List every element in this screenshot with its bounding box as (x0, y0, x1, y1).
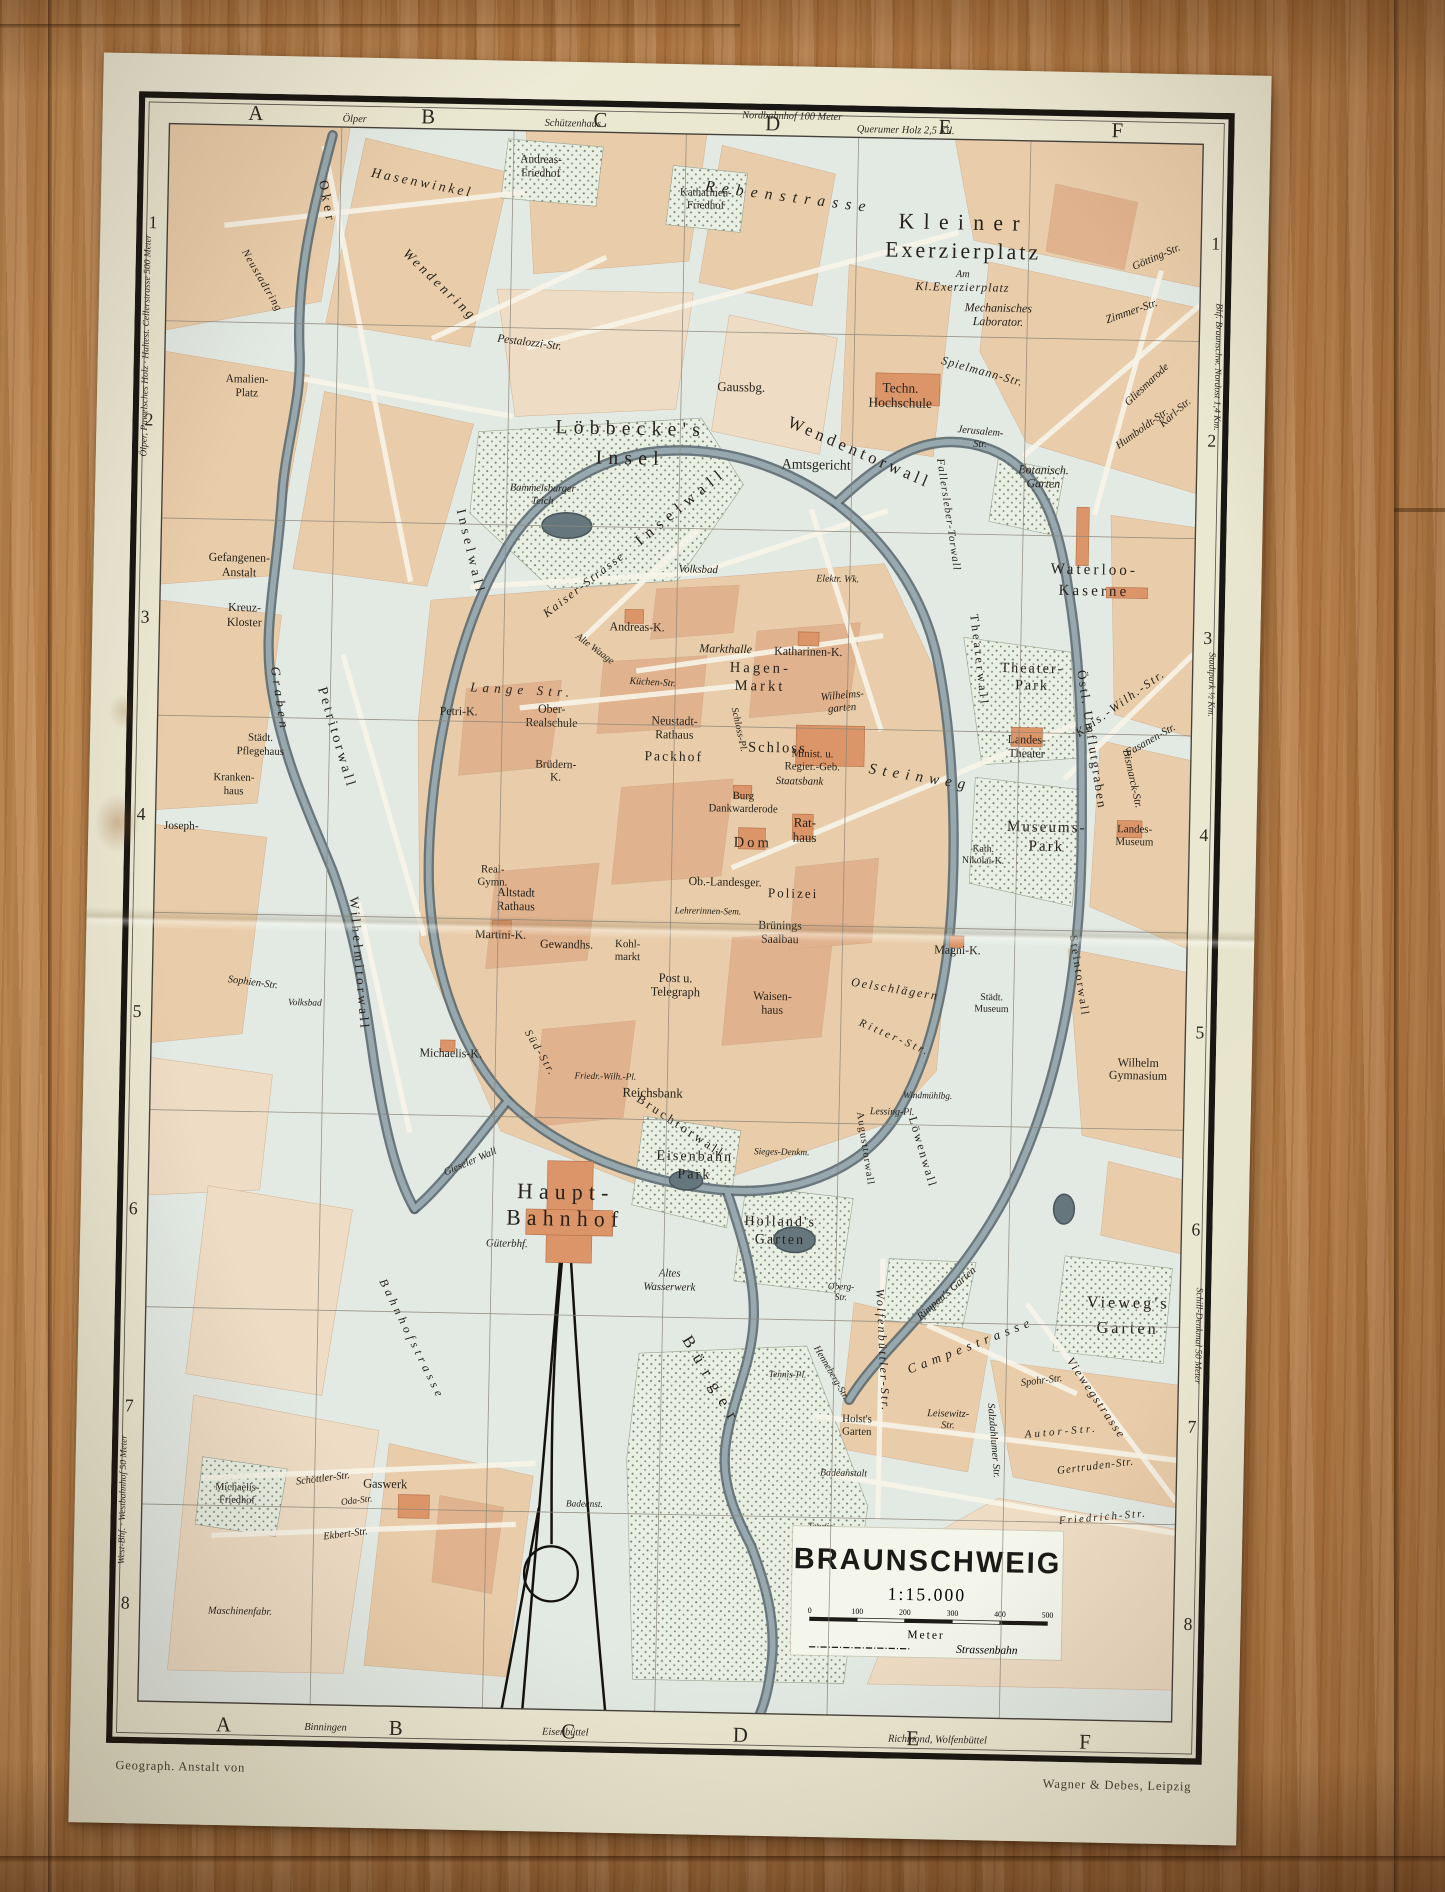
map-label: Katharinen-K. (774, 644, 843, 660)
grid-number-right: 4 (1199, 825, 1208, 845)
scale-unit: Meter (907, 1629, 945, 1642)
grid-number-right: 3 (1203, 628, 1212, 648)
map-label: Vieweg's (1087, 1293, 1170, 1313)
map-label: Volksbad (288, 998, 322, 1009)
map-label: Löbbecke's (555, 416, 706, 441)
scale-tick: 200 (899, 1608, 911, 1617)
map-label: Martini-K. (475, 927, 526, 942)
grid-number-right: 6 (1191, 1219, 1200, 1239)
scale-tick: 500 (1042, 1610, 1054, 1619)
map-label: Lehrerinnen-Sem. (674, 906, 742, 917)
map-label: Burg (733, 790, 755, 803)
map-label: Kath. (972, 843, 994, 855)
map-label: Kl.Exerzierplatz (914, 279, 1009, 295)
city-block (789, 856, 879, 951)
scale-tick: 0 (808, 1606, 812, 1615)
map-label: Garten (755, 1231, 806, 1248)
map-label: Am (955, 269, 970, 280)
grid-number-left: 3 (141, 606, 150, 626)
scale-bar-segment (1000, 1621, 1048, 1625)
map-label: Gaswerk (363, 1476, 408, 1491)
map-label: Altes (658, 1267, 681, 1280)
photo-scene: HasenwinkelAndreas-FriedhofRebenstrasseK… (0, 0, 1445, 1892)
map-label: Telegraph (651, 984, 701, 999)
map-label: Friedhof (521, 167, 561, 180)
map-label: Theater- (1001, 660, 1065, 677)
map-label: Waterloo- (1051, 560, 1139, 579)
edge-note-top: Schützenhaus (545, 118, 601, 130)
grid-letter-top: A (248, 101, 263, 126)
map-label: Insel (595, 446, 665, 470)
map-label: Ober- (538, 701, 566, 716)
tram-legend: Strassenbahn (956, 1644, 1018, 1657)
map-label: Magni-K. (934, 942, 981, 957)
map-label: Kaserne (1058, 582, 1129, 601)
map-label: Waisen- (753, 988, 792, 1003)
scale-bar-segment (905, 1619, 953, 1623)
grid-number-right: 8 (1183, 1614, 1192, 1634)
map-label: Schloss (748, 739, 807, 756)
map-label: Str. (973, 439, 987, 450)
map-label: Kreuz- (228, 600, 261, 615)
map-label: Sieges-Denkm. (754, 1147, 810, 1158)
map-label: Nikolai-K. (962, 855, 1004, 867)
map-label: Park (1028, 837, 1064, 855)
map-label: Holst's (842, 1413, 872, 1426)
map-label: Kleiner (898, 208, 1029, 236)
map-label: Windmühlbg. (903, 1091, 952, 1102)
plank-gap (1394, 0, 1399, 1892)
map-label: Anstalt (222, 565, 257, 580)
map-label: Ob.-Landesger. (688, 874, 761, 890)
map-label: Park (677, 1166, 711, 1183)
map-label: Andreas-K. (610, 619, 665, 634)
map-label: Friedhof (219, 1494, 255, 1506)
pond (1053, 1194, 1074, 1224)
map-label: Regier.-Geb. (784, 760, 840, 773)
map-label: Rathaus (496, 899, 535, 914)
edge-note-top: Querumer Holz 2,5 Kil. (857, 124, 955, 137)
park (969, 777, 1085, 906)
map-label: Kranken- (213, 771, 254, 784)
map-label: Saalbau (761, 931, 799, 946)
map-label: Hagen- (730, 660, 792, 677)
scale-tick: 100 (851, 1607, 863, 1616)
map-label: Amalien- (226, 373, 269, 386)
map-label: Laborator. (972, 314, 1024, 329)
grid-number-right: 2 (1207, 430, 1216, 450)
imprint-publisher-right: Wagner & Debes, Leipzig (1043, 1777, 1192, 1795)
map-label: Real- (481, 863, 505, 876)
map-label: Gaussbg. (717, 379, 765, 395)
map-label: Tennis-Pl. (769, 1370, 807, 1381)
map-label: Elektr. Wk. (815, 573, 859, 585)
map-label: Friedhof (687, 199, 725, 212)
map-label: Brüdern- (535, 758, 576, 771)
grid-number-right: 1 (1211, 233, 1220, 253)
map-label: Landes- (1117, 823, 1152, 836)
title-block: BRAUNSCHWEIG1:15.0000100200300400500Mete… (790, 1526, 1063, 1661)
braunschweig-map: HasenwinkelAndreas-FriedhofRebenstrasseK… (106, 91, 1235, 1765)
map-label: Kloster (227, 615, 262, 630)
plank-gap (0, 1856, 1445, 1862)
grid-letter-bottom: F (1079, 1729, 1091, 1754)
map-label: Städt. (980, 992, 1003, 1004)
map-label: Wasserwerk (643, 1281, 696, 1294)
map-label: Badeanstalt (820, 1467, 867, 1479)
map-label: Lessing-Pl. (869, 1106, 915, 1118)
map-label: Michaelis-K. (419, 1045, 482, 1060)
map-label: Dankwarderode (708, 802, 778, 816)
map-label: Petri-K. (440, 704, 478, 719)
map-label: Gewandhs. (540, 937, 593, 952)
map-paper: HasenwinkelAndreas-FriedhofRebenstrasseK… (68, 52, 1271, 1845)
map-label: Polizei (768, 885, 819, 901)
edge-note-bottom: Eisenbüttel (541, 1727, 589, 1739)
grid-number-left: 8 (121, 1592, 130, 1612)
grid-number-right: 5 (1195, 1022, 1204, 1042)
grid-number-left: 7 (125, 1395, 134, 1415)
map-label: Katharinen- (680, 186, 732, 199)
edge-note-right: Schill-Denkmal 50 Meter (1192, 1288, 1204, 1385)
map-label: haus (761, 1002, 783, 1017)
map-frame: HasenwinkelAndreas-FriedhofRebenstrasseK… (106, 91, 1235, 1765)
scale-bar-segment (952, 1620, 1000, 1624)
map-label: K. (550, 771, 561, 783)
map-label: Markthalle (698, 641, 753, 656)
map-label: Gymn. (477, 876, 507, 889)
map-label: Friedr.-Wilh.-Pl. (573, 1072, 636, 1083)
map-label: Leisewitz- (926, 1408, 970, 1420)
map-label: Volksbad (679, 563, 719, 576)
map-scale: 1:15.000 (888, 1583, 967, 1605)
map-label: Maschinenfabr. (207, 1605, 272, 1617)
plank-gap (0, 24, 740, 28)
scale-tick: 400 (994, 1610, 1006, 1619)
map-label: Eisenbahn (656, 1148, 733, 1166)
grid-letter-bottom: B (389, 1716, 403, 1741)
grid-number-left: 5 (133, 1001, 142, 1021)
scale-bar-segment (857, 1618, 905, 1622)
edge-note-right: Stadtpark ½ Km. (1205, 652, 1217, 717)
grid-letter-bottom: D (733, 1722, 748, 1747)
map-label: Theater (1008, 746, 1045, 761)
grid-letter-top: F (1111, 118, 1123, 143)
map-label: Joseph- (164, 820, 199, 833)
edge-note-bottom: Richmond, Wolfenbüttel (887, 1733, 987, 1746)
map-label: Pflegehaus (236, 745, 284, 758)
map-label: Landes- (1008, 732, 1047, 747)
map-label: Str. (941, 1420, 955, 1431)
map-label: Gefangenen- (209, 550, 271, 565)
map-label: Andreas- (520, 153, 562, 166)
map-label: Garten (842, 1425, 872, 1438)
scale-tick: 300 (947, 1609, 959, 1618)
edge-note-top: Ölper (343, 113, 368, 126)
map-title: BRAUNSCHWEIG (794, 1542, 1062, 1581)
map-label: Garten (1026, 476, 1060, 491)
map-label: Bahnhof (506, 1204, 625, 1232)
map-label: Museums- (1007, 818, 1087, 837)
building (398, 1495, 429, 1519)
map-label: Garten (1096, 1319, 1159, 1338)
grid-number-left: 1 (148, 212, 157, 232)
plank-gap (48, 0, 52, 1892)
map-label: Rat- (794, 815, 817, 831)
grid-letter-top: B (421, 104, 435, 129)
map-label: Teich (531, 496, 553, 508)
map-label: haus (793, 829, 817, 845)
map-label: Hochschule (868, 394, 932, 410)
map-label: Post u. (659, 971, 693, 986)
map-label: Museum (1115, 836, 1154, 849)
grid-number-right: 7 (1187, 1416, 1196, 1436)
map-label: Exerzierplatz (885, 236, 1041, 264)
map-label: Techn. (882, 380, 918, 396)
city-block (148, 1057, 273, 1197)
map-label: Haupt- (517, 1178, 615, 1205)
map-label: Museum (974, 1003, 1009, 1015)
map-label: Platz (235, 387, 258, 400)
map-label: Gymnasium (1109, 1068, 1168, 1083)
map-label: Dom (734, 835, 773, 852)
map-label: Oberg- (828, 1282, 855, 1293)
map-label: Bammelsburger (510, 482, 577, 494)
map-label: Michaelis- (215, 1482, 260, 1494)
grid-letter-bottom: A (216, 1712, 231, 1737)
map-label: Holland's (744, 1213, 816, 1231)
map-label: Badeanst. (566, 1499, 603, 1510)
map-label: Str. (835, 1293, 847, 1303)
map-label: Staatsbank (776, 775, 825, 788)
edge-note-top: Nordbahnhof 100 Meter (741, 110, 843, 123)
edge-note-bottom: Binningen (304, 1722, 347, 1734)
plank-gap (1394, 508, 1445, 512)
map-label: Kohl- (615, 938, 641, 951)
map-label: haus (224, 785, 244, 798)
imprint-publisher-left: Geograph. Anstalt von (115, 1758, 245, 1776)
grid-number-left: 6 (129, 1198, 138, 1218)
map-label: markt (615, 951, 641, 964)
map-label: Markt (734, 678, 785, 695)
map-label: Städt. (248, 731, 273, 744)
map-label: Amtsgericht (782, 456, 851, 474)
map-label: garten (827, 701, 857, 716)
scale-bar-segment (810, 1617, 858, 1621)
